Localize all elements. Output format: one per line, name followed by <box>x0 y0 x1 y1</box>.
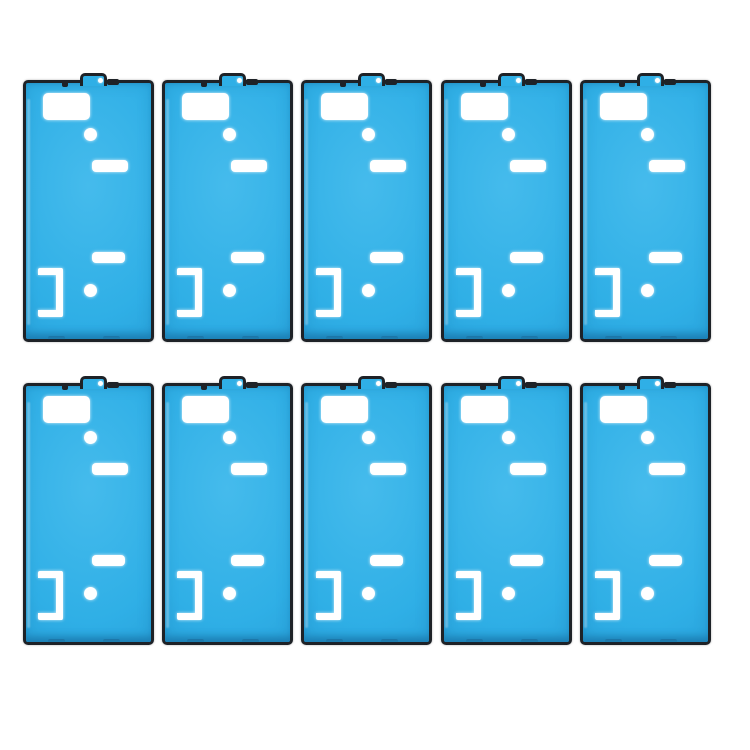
upper-hole-cutout <box>641 431 654 444</box>
tab-hole-cutout <box>655 78 660 83</box>
top-edge-notch <box>480 81 486 87</box>
lower-hole-cutout <box>502 587 515 600</box>
lower-hole-cutout <box>223 587 236 600</box>
adhesive-sticker <box>580 383 711 645</box>
lower-hole-cutout <box>84 587 97 600</box>
lower-hole-cutout <box>641 284 654 297</box>
upper-hole-cutout <box>84 128 97 141</box>
bottom-border-mark <box>381 336 398 340</box>
tab-hole-cutout <box>376 381 381 386</box>
bracket-cutout <box>316 268 341 317</box>
top-edge-notch <box>340 384 346 390</box>
bottom-border-mark <box>466 336 483 340</box>
tab-shoulder-mark <box>107 382 119 388</box>
liner-pull-tab <box>80 376 107 389</box>
bottom-border-mark <box>660 639 677 643</box>
liner-edge-highlight <box>445 99 448 325</box>
tab-hole-cutout <box>98 78 103 83</box>
tab-shoulder-mark <box>385 382 397 388</box>
bracket-cutout <box>38 571 63 620</box>
upper-slot-cutout <box>92 160 128 172</box>
liner-pull-tab <box>219 73 246 86</box>
top-edge-notch <box>62 384 68 390</box>
upper-hole-cutout <box>502 128 515 141</box>
sensor-window-cutout <box>600 93 647 120</box>
sensor-window-cutout <box>461 93 508 120</box>
bottom-border-mark <box>521 336 538 340</box>
bracket-cutout <box>595 571 620 620</box>
top-edge-notch <box>201 81 207 87</box>
lower-hole-cutout <box>641 587 654 600</box>
lower-hole-cutout <box>502 284 515 297</box>
liner-pull-tab <box>498 73 525 86</box>
liner-pull-tab <box>358 376 385 389</box>
bottom-border-mark <box>48 336 65 340</box>
sensor-window-cutout <box>182 93 229 120</box>
liner-pull-tab <box>219 376 246 389</box>
top-edge-notch <box>619 384 625 390</box>
upper-hole-cutout <box>362 431 375 444</box>
sensor-window-cutout <box>43 93 90 120</box>
tab-shoulder-mark <box>107 79 119 85</box>
bottom-border-mark <box>605 336 622 340</box>
bottom-border-mark <box>521 639 538 643</box>
tab-hole-cutout <box>376 78 381 83</box>
bracket-cutout <box>177 268 202 317</box>
adhesive-sticker <box>441 383 572 645</box>
sensor-window-cutout <box>321 396 368 423</box>
tab-shoulder-mark <box>525 79 537 85</box>
lower-slot-cutout <box>649 555 682 566</box>
upper-hole-cutout <box>641 128 654 141</box>
bracket-cutout <box>38 268 63 317</box>
bracket-cutout <box>177 571 202 620</box>
sensor-window-cutout <box>461 396 508 423</box>
lower-slot-cutout <box>649 252 682 263</box>
liner-edge-highlight <box>27 99 30 325</box>
lower-slot-cutout <box>231 252 264 263</box>
tab-hole-cutout <box>237 78 242 83</box>
liner-pull-tab <box>637 376 664 389</box>
sensor-window-cutout <box>321 93 368 120</box>
adhesive-sticker <box>23 383 154 645</box>
liner-edge-highlight <box>445 402 448 628</box>
bracket-cutout <box>595 268 620 317</box>
bottom-border-mark <box>381 639 398 643</box>
adhesive-sticker <box>23 80 154 342</box>
liner-edge-highlight <box>166 402 169 628</box>
product-photo <box>0 0 750 750</box>
bottom-border-mark <box>326 336 343 340</box>
bottom-border-mark <box>242 639 259 643</box>
upper-slot-cutout <box>649 160 685 172</box>
tab-hole-cutout <box>98 381 103 386</box>
top-edge-notch <box>201 384 207 390</box>
bottom-border-mark <box>103 336 120 340</box>
tab-shoulder-mark <box>664 79 676 85</box>
bracket-cutout <box>316 571 341 620</box>
upper-slot-cutout <box>649 463 685 475</box>
top-edge-notch <box>619 81 625 87</box>
upper-slot-cutout <box>231 160 267 172</box>
liner-edge-highlight <box>584 402 587 628</box>
tab-shoulder-mark <box>525 382 537 388</box>
upper-slot-cutout <box>92 463 128 475</box>
liner-pull-tab <box>498 376 525 389</box>
sensor-window-cutout <box>182 396 229 423</box>
upper-hole-cutout <box>223 128 236 141</box>
tab-shoulder-mark <box>664 382 676 388</box>
lower-hole-cutout <box>84 284 97 297</box>
upper-slot-cutout <box>231 463 267 475</box>
sensor-window-cutout <box>600 396 647 423</box>
bottom-border-mark <box>187 336 204 340</box>
top-edge-notch <box>340 81 346 87</box>
lower-hole-cutout <box>362 284 375 297</box>
upper-hole-cutout <box>223 431 236 444</box>
upper-slot-cutout <box>370 463 406 475</box>
adhesive-sticker <box>441 80 572 342</box>
lower-slot-cutout <box>92 252 125 263</box>
lower-hole-cutout <box>362 587 375 600</box>
bracket-cutout <box>456 268 481 317</box>
bottom-border-mark <box>242 336 259 340</box>
upper-slot-cutout <box>510 463 546 475</box>
bottom-border-mark <box>466 639 483 643</box>
liner-edge-highlight <box>305 99 308 325</box>
upper-hole-cutout <box>362 128 375 141</box>
adhesive-sticker <box>162 80 293 342</box>
adhesive-sticker <box>301 383 432 645</box>
tab-hole-cutout <box>237 381 242 386</box>
adhesive-sticker <box>301 80 432 342</box>
liner-edge-highlight <box>584 99 587 325</box>
sensor-window-cutout <box>43 396 90 423</box>
liner-pull-tab <box>637 73 664 86</box>
tab-shoulder-mark <box>246 382 258 388</box>
lower-slot-cutout <box>370 555 403 566</box>
liner-pull-tab <box>80 73 107 86</box>
bracket-cutout <box>456 571 481 620</box>
bottom-border-mark <box>187 639 204 643</box>
upper-slot-cutout <box>510 160 546 172</box>
lower-hole-cutout <box>223 284 236 297</box>
tab-hole-cutout <box>516 381 521 386</box>
lower-slot-cutout <box>231 555 264 566</box>
bottom-border-mark <box>605 639 622 643</box>
lower-slot-cutout <box>510 555 543 566</box>
adhesive-sticker <box>580 80 711 342</box>
upper-slot-cutout <box>370 160 406 172</box>
bottom-border-mark <box>660 336 677 340</box>
liner-pull-tab <box>358 73 385 86</box>
liner-edge-highlight <box>305 402 308 628</box>
liner-edge-highlight <box>27 402 30 628</box>
bottom-border-mark <box>48 639 65 643</box>
upper-hole-cutout <box>84 431 97 444</box>
top-edge-notch <box>62 81 68 87</box>
tab-hole-cutout <box>516 78 521 83</box>
lower-slot-cutout <box>370 252 403 263</box>
tab-shoulder-mark <box>246 79 258 85</box>
bottom-border-mark <box>326 639 343 643</box>
tab-hole-cutout <box>655 381 660 386</box>
bottom-border-mark <box>103 639 120 643</box>
lower-slot-cutout <box>510 252 543 263</box>
tab-shoulder-mark <box>385 79 397 85</box>
adhesive-sticker <box>162 383 293 645</box>
liner-edge-highlight <box>166 99 169 325</box>
lower-slot-cutout <box>92 555 125 566</box>
upper-hole-cutout <box>502 431 515 444</box>
top-edge-notch <box>480 384 486 390</box>
